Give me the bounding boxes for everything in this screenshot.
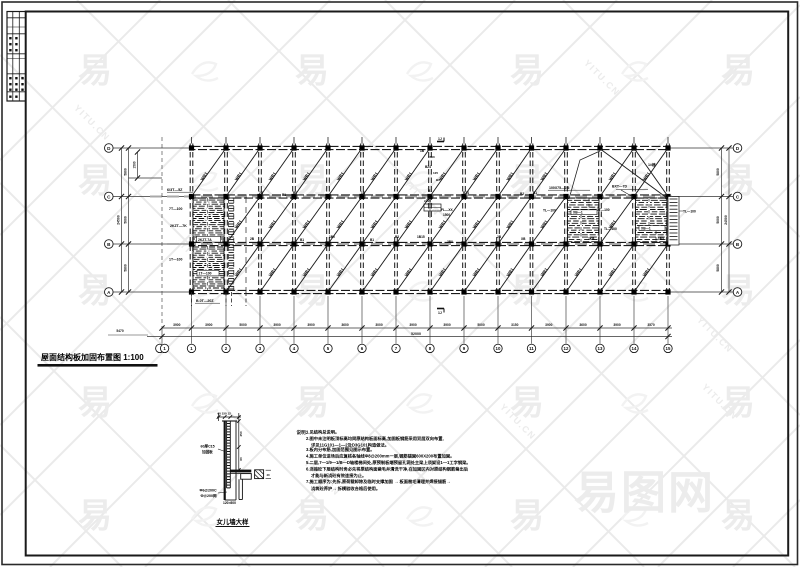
svg-text:1500: 1500 (428, 155, 435, 159)
svg-text:5.二层,7—1/9—1/B—D轴楼梯间处,原预制板端预留孔: 5.二层,7—1/9—1/B—D轴楼梯间处,原预制板端预留孔洞处主梁上须架设1—… (306, 459, 471, 466)
svg-text:易: 易 (510, 162, 544, 200)
svg-text:易: 易 (510, 52, 544, 90)
svg-text:7T—100: 7T—100 (169, 207, 182, 211)
svg-text:5000: 5000 (239, 323, 247, 327)
svg-text:1T—100: 1T—100 (597, 208, 610, 212)
svg-text:7.施工顺序为:先拆,原荷载卸除及临时支撑加固 → 板面凿毛: 7.施工顺序为:先拆,原荷载卸除及临时支撑加固 → 板面凿毛清理并焊接锚筋→ (306, 478, 451, 485)
svg-text:1B5: 1B5 (658, 237, 664, 241)
svg-text:XB—1: XB—1 (573, 211, 583, 215)
svg-text:3900: 3900 (273, 323, 281, 327)
svg-text:3900: 3900 (205, 323, 213, 327)
svg-text:易图网: 易图网 (574, 467, 715, 518)
svg-text:2B: 2B (259, 191, 264, 195)
svg-text:5000: 5000 (477, 323, 485, 327)
svg-text:1B: 1B (361, 191, 366, 195)
svg-text:1T—100: 1T—100 (199, 272, 212, 276)
svg-text:B3: B3 (395, 235, 399, 239)
svg-text:40: 40 (267, 473, 271, 477)
svg-text:1J: 1J (438, 137, 442, 141)
svg-text:100X75—2.6: 100X75—2.6 (549, 186, 569, 190)
svg-text:6.浇捣砼下层结构时务必先将原结构面凿毛并清洗干净,在加固区: 6.浇捣砼下层结构时务必先将原结构面凿毛并清洗干净,在加固区内对原结构钢筋凿出后 (306, 465, 469, 472)
svg-text:TL—100: TL—100 (604, 227, 617, 231)
svg-text:1500: 1500 (443, 213, 450, 217)
svg-text:2B0: 2B0 (447, 240, 453, 244)
svg-text:B1: B1 (370, 238, 374, 242)
svg-text:易: 易 (510, 272, 544, 310)
svg-text:B1: B1 (428, 189, 432, 193)
svg-text:11: 11 (529, 346, 534, 351)
svg-text:125: 125 (433, 171, 438, 175)
svg-text:易: 易 (721, 497, 755, 535)
svg-text:5800: 5800 (123, 264, 127, 272)
svg-text:1B: 1B (420, 149, 425, 153)
svg-text:加固板: 加固板 (201, 449, 213, 454)
svg-text:60: 60 (239, 457, 243, 461)
svg-text:B1: B1 (533, 191, 537, 195)
svg-text:250: 250 (239, 431, 243, 436)
svg-text:BXT—7D: BXT—7D (612, 185, 627, 189)
svg-text:TL—100: TL—100 (543, 209, 556, 213)
svg-text:1B15: 1B15 (417, 235, 425, 239)
svg-text:易: 易 (295, 52, 329, 90)
svg-text:1500: 1500 (132, 161, 136, 168)
svg-text:3600: 3600 (579, 323, 587, 327)
svg-text:B.0T—20Z: B.0T—20Z (196, 299, 214, 303)
svg-text:易: 易 (78, 384, 112, 422)
svg-text:5800: 5800 (123, 168, 127, 176)
svg-text:12: 12 (564, 346, 569, 351)
svg-text:3600: 3600 (341, 323, 349, 327)
svg-text:3900: 3900 (613, 323, 621, 327)
svg-text:1#楼: 1#楼 (648, 162, 656, 167)
svg-text:1.见结构总说明。: 1.见结构总说明。 (306, 429, 339, 436)
svg-text:易: 易 (510, 497, 544, 535)
svg-text:屋面结构板加固布置图 1:100: 屋面结构板加固布置图 1:100 (41, 352, 144, 362)
svg-text:易: 易 (78, 497, 112, 535)
svg-text:易: 易 (295, 497, 329, 535)
svg-text:5800: 5800 (716, 264, 720, 272)
svg-text:才能与新浇砼有效连接为止。: 才能与新浇砼有效连接为止。 (311, 472, 366, 479)
svg-text:10: 10 (496, 346, 501, 351)
svg-text:2.图中未注明板顶标高均同原结构板面标高,加固板钢筋采用双层: 2.图中未注明板顶标高均同原结构板面标高,加固板钢筋采用双层双向布置, (306, 435, 444, 442)
svg-text:Φ@200网: Φ@200网 (201, 493, 217, 498)
svg-text:60厚C15: 60厚C15 (201, 444, 215, 449)
svg-text:3.板内分布筋,加固范围见图示布置。: 3.板内分布筋,加固范围见图示布置。 (306, 446, 374, 453)
svg-text:B2: B2 (520, 192, 524, 196)
svg-text:24500: 24500 (116, 215, 120, 225)
svg-text:易: 易 (78, 52, 112, 90)
svg-text:3900: 3900 (545, 323, 553, 327)
svg-text:3900: 3900 (409, 323, 417, 327)
svg-text:52000: 52000 (411, 332, 421, 336)
svg-text:2B: 2B (250, 237, 255, 241)
svg-text:5470: 5470 (116, 329, 124, 333)
svg-text:3000: 3000 (375, 323, 383, 327)
svg-text:5000: 5000 (123, 216, 127, 224)
svg-text:易: 易 (295, 384, 329, 422)
svg-text:1J: 1J (438, 311, 442, 315)
svg-text:B24: B24 (425, 165, 431, 169)
svg-text:B1: B1 (300, 238, 304, 242)
svg-text:7KB: 7KB (588, 237, 595, 241)
svg-text:Φ6@200C: Φ6@200C (200, 489, 217, 493)
svg-text:6/3T—5Z: 6/3T—5Z (167, 188, 183, 192)
svg-text:易: 易 (295, 162, 329, 200)
svg-text:120>800: 120>800 (223, 501, 236, 505)
svg-text:5000: 5000 (716, 216, 720, 224)
svg-text:B24: B24 (463, 191, 469, 195)
svg-text:1T—100: 1T—100 (169, 258, 182, 262)
svg-text:TL—100: TL—100 (683, 210, 696, 214)
svg-text:15: 15 (666, 346, 671, 351)
svg-text:B1: B1 (282, 193, 286, 197)
svg-text:60 150 12: 60 150 12 (218, 412, 232, 416)
svg-text:4.施工单位进场后应复核各轴线Φ8@200mm一层,钢筋锚固: 4.施工单位进场后应复核各轴线Φ8@200mm一层,钢筋锚固600X200布置加… (306, 453, 454, 460)
svg-text:3570: 3570 (647, 323, 655, 327)
svg-text:2KZT—7K: 2KZT—7K (170, 224, 187, 228)
svg-text:3900: 3900 (307, 323, 315, 327)
svg-text:24500: 24500 (724, 215, 728, 225)
svg-text:3900: 3900 (173, 323, 181, 327)
svg-text:3900: 3900 (443, 323, 451, 327)
svg-text:B0: B0 (293, 191, 297, 195)
svg-text:易: 易 (295, 272, 329, 310)
svg-text:2KZT-7A: 2KZT-7A (198, 238, 212, 242)
svg-text:FL—XX: FL—XX (441, 208, 454, 212)
svg-text:XB—1: XB—1 (641, 227, 651, 231)
svg-text:14: 14 (632, 346, 637, 351)
svg-text:XB: XB (521, 237, 526, 241)
svg-text:B3: B3 (436, 178, 440, 182)
svg-text:5800: 5800 (716, 168, 720, 176)
svg-text:1B0: 1B0 (329, 235, 335, 239)
svg-text:13: 13 (598, 346, 603, 351)
svg-text:易: 易 (721, 52, 755, 90)
svg-text:女儿墙大样: 女儿墙大样 (217, 517, 250, 526)
svg-text:2B: 2B (497, 235, 502, 239)
svg-text:浇筑砼养护→ 拆模验收合格后使用。: 浇筑砼养护→ 拆模验收合格后使用。 (311, 485, 380, 492)
svg-text:3150: 3150 (511, 323, 519, 327)
